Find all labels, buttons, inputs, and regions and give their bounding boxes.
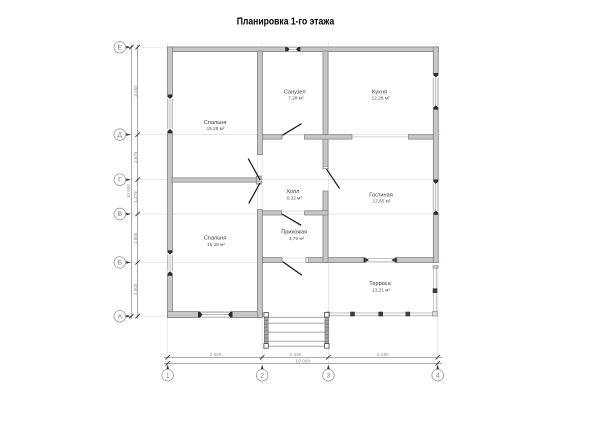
svg-text:2 450: 2 450 [290, 352, 302, 357]
svg-text:Спальня: Спальня [204, 120, 226, 126]
svg-text:3 500: 3 500 [210, 352, 222, 357]
svg-text:3,79 м²: 3,79 м² [289, 236, 305, 241]
svg-text:4 050: 4 050 [377, 352, 389, 357]
svg-text:Спальня: Спальня [204, 236, 226, 242]
svg-text:Планировка 1-го этажа: Планировка 1-го этажа [237, 17, 335, 28]
svg-text:Терраса: Терраса [369, 281, 391, 287]
svg-text:4: 4 [436, 372, 440, 379]
svg-text:2: 2 [260, 372, 264, 379]
svg-text:12,29 м²: 12,29 м² [372, 95, 390, 100]
svg-text:3.250: 3.250 [133, 85, 138, 97]
svg-text:1.675: 1.675 [133, 151, 138, 163]
svg-text:17,55 м²: 17,55 м² [373, 199, 391, 204]
svg-text:10 000: 10 000 [296, 358, 311, 363]
svg-text:Е: Е [118, 44, 122, 51]
svg-text:Г: Г [118, 177, 122, 184]
svg-text:Б: Б [118, 260, 122, 267]
svg-text:Санузел: Санузел [284, 89, 306, 95]
svg-text:2.000: 2.000 [133, 283, 138, 295]
svg-text:1.800: 1.800 [133, 232, 138, 244]
svg-text:Прихожая: Прихожая [281, 230, 307, 236]
svg-text:3: 3 [327, 372, 331, 379]
svg-text:1: 1 [166, 372, 170, 379]
svg-text:15,28 м²: 15,28 м² [207, 242, 225, 247]
svg-text:В: В [118, 211, 122, 218]
svg-text:Гостиная: Гостиная [369, 192, 392, 198]
svg-text:10.000: 10.000 [126, 184, 131, 198]
svg-text:15,28 м²: 15,28 м² [207, 126, 225, 131]
svg-text:13,21 м²: 13,21 м² [372, 287, 390, 292]
svg-text:6,32 м²: 6,32 м² [287, 195, 303, 200]
svg-text:Д: Д [118, 132, 123, 139]
svg-text:Холл: Холл [286, 189, 299, 195]
svg-text:7,28 м²: 7,28 м² [288, 96, 304, 101]
svg-text:1.275: 1.275 [133, 191, 138, 203]
